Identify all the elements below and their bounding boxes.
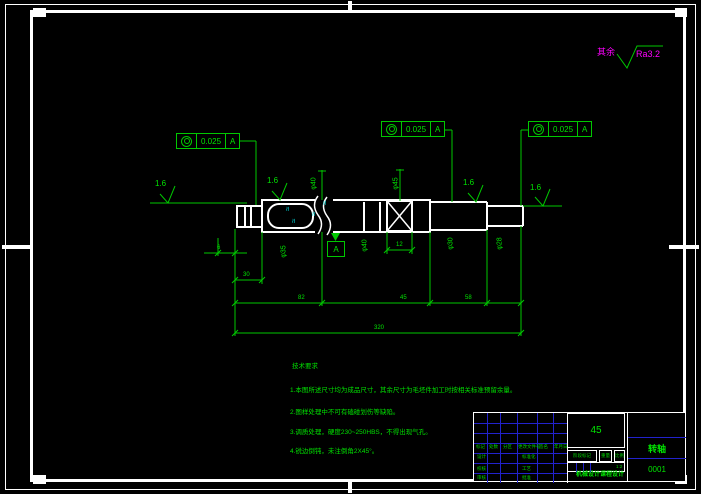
field-label: 分区 [503, 445, 512, 450]
tolerance-frame: 0.025 A [528, 121, 592, 137]
field-label: 批准 [522, 476, 531, 481]
concentricity-icon [529, 122, 549, 136]
part-name-cell: 转轴 [628, 438, 686, 458]
tolerance-value: 0.025 [402, 122, 431, 136]
dim-label: 30 [243, 272, 250, 278]
concentricity-icon [177, 134, 197, 148]
field-label: 审核 [477, 476, 486, 481]
field-label: 标准化 [522, 455, 536, 460]
dim-label-vertical: φ30 [448, 231, 457, 257]
dim-label-vertical: φ40 [311, 171, 320, 197]
drawing-number: 0001 [648, 465, 666, 474]
table-hline [474, 453, 567, 454]
dim-label: 58 [465, 295, 472, 301]
scale-label: 比例 [615, 454, 624, 459]
stage-label: 阶段标记 [573, 454, 591, 459]
break-mark: ≈ [289, 219, 297, 223]
cad-drawing-page: 其余 Ra3.2 0.025 A 0.025 A 0.025 A 1.6 1.6… [0, 0, 701, 494]
tolerance-datum: A [578, 122, 591, 136]
dim-label-vertical: φ35 [281, 239, 290, 265]
dim-label: 12 [396, 242, 403, 248]
break-mark: ≈ [309, 212, 317, 216]
tolerance-value: 0.025 [549, 122, 578, 136]
section-hatch [387, 201, 412, 231]
datum-letter: A [333, 245, 338, 254]
break-mark: ≈ [320, 201, 328, 205]
material-value: 45 [590, 425, 601, 436]
dim-label-vertical: φ45 [393, 171, 402, 197]
field-label: 年月日 [554, 445, 568, 450]
roughness-label: 1.6 [267, 177, 278, 185]
table-hline [474, 433, 567, 434]
stage-box: 阶段标记 [567, 450, 597, 462]
roughness-value-label: Ra3.2 [636, 50, 660, 59]
roughness-label: 1.6 [463, 179, 474, 187]
notes-title: 技术要求 [292, 364, 318, 371]
table-hline [474, 463, 567, 464]
field-label: 处数 [489, 445, 498, 450]
tolerance-value: 0.025 [197, 134, 226, 148]
note-line: 2.图样处理中不可有磕碰划伤等缺陷。 [290, 410, 399, 417]
scale-value: 1:2 [616, 465, 622, 470]
table-hline [474, 423, 567, 424]
scale-box: 比例 [614, 450, 625, 462]
tolerance-datum: A [226, 134, 239, 148]
field-label: 工艺 [522, 467, 531, 472]
shaft-outline [237, 200, 523, 232]
note-line: 4.锐边倒钝，未注倒角2X45°。 [290, 449, 378, 456]
roughness-label: 1.6 [530, 184, 541, 192]
datum-label-box: A [327, 241, 345, 257]
sheet-count-box: 1:2 [567, 462, 625, 472]
table-hline [474, 473, 567, 474]
roughness-label: 1.6 [155, 180, 166, 188]
tolerance-frame: 0.025 A [176, 133, 240, 149]
weight-label: 重量 [601, 454, 610, 459]
note-line: 3.调质处理，硬度230~250HBS，不得出现气孔。 [290, 430, 432, 437]
tolerance-frame: 0.025 A [381, 121, 445, 137]
concentricity-icon [382, 122, 402, 136]
drawing-number-cell: 0001 [628, 459, 686, 480]
part-name: 转轴 [648, 442, 666, 455]
material-box: 45 [567, 413, 625, 448]
dim-label-vertical: φ28 [497, 231, 506, 257]
break-mark: ≈ [283, 207, 291, 211]
field-label: 校核 [477, 467, 486, 472]
organization-label: 机械设计课程设计 [576, 472, 624, 478]
tolerance-datum: A [431, 122, 444, 136]
field-label: 标记 [476, 445, 485, 450]
note-line: 1.本图所述尺寸均为成品尺寸，其余尺寸为毛坯件加工时按相关标准预留余量。 [290, 388, 516, 395]
dim-label: 6 [217, 245, 220, 251]
datum-triangle [331, 233, 340, 241]
field-label: 更改文件号 [518, 445, 541, 450]
dim-label: 45 [400, 295, 407, 301]
dim-label: 82 [298, 295, 305, 301]
weight-box: 重量 [599, 450, 612, 462]
dim-label-vertical: φ40 [362, 233, 371, 259]
rest-surfaces-label: 其余 [597, 48, 615, 57]
field-label: 设计 [477, 455, 486, 460]
field-label: 签名 [539, 445, 548, 450]
dim-label: 320 [374, 325, 384, 331]
